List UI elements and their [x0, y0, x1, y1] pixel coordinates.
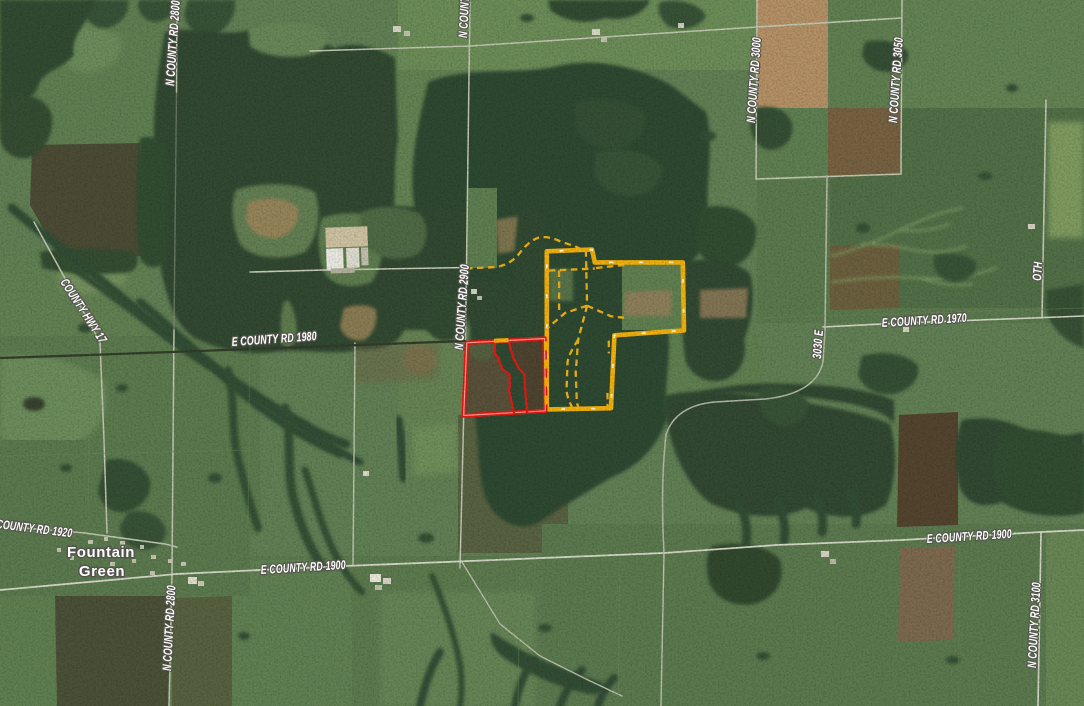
svg-text:3030 E: 3030 E [811, 329, 827, 359]
svg-text:Fountain: Fountain [67, 544, 135, 561]
svg-text:OTH: OTH [1031, 261, 1046, 281]
svg-text:Green: Green [79, 563, 125, 580]
